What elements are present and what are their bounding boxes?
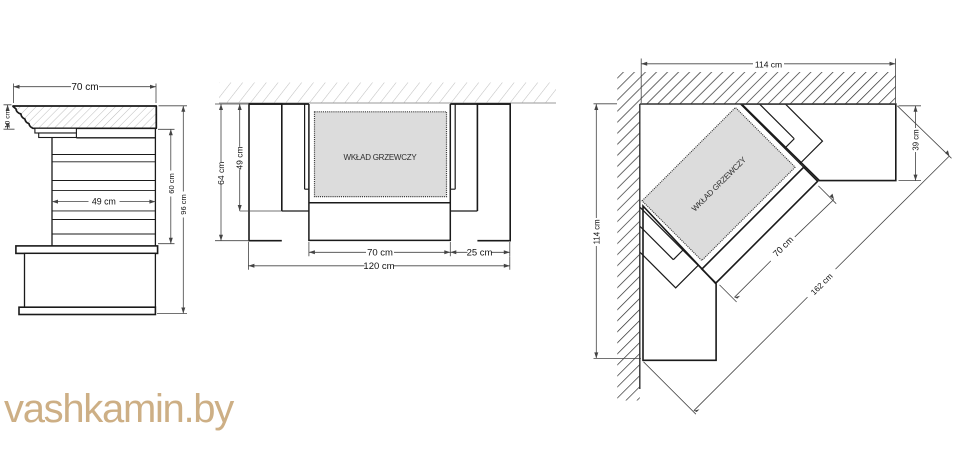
svg-text:vashkamin.by: vashkamin.by	[4, 387, 234, 431]
svg-text:10 cm: 10 cm	[5, 109, 12, 128]
svg-text:70 cm: 70 cm	[771, 234, 795, 258]
svg-text:70 cm: 70 cm	[367, 247, 393, 258]
svg-text:WKŁAD GRZEWCZY: WKŁAD GRZEWCZY	[344, 153, 418, 162]
svg-text:39 cm: 39 cm	[912, 129, 921, 150]
svg-text:114 cm: 114 cm	[755, 59, 782, 69]
svg-text:70 cm: 70 cm	[71, 82, 98, 93]
svg-text:49 cm: 49 cm	[235, 146, 245, 169]
svg-text:49 cm: 49 cm	[92, 197, 116, 207]
svg-text:25 cm: 25 cm	[467, 247, 493, 258]
svg-text:96 cm: 96 cm	[179, 194, 188, 214]
svg-text:64 cm: 64 cm	[216, 162, 226, 185]
svg-text:60 cm: 60 cm	[167, 173, 176, 193]
svg-text:114 cm: 114 cm	[592, 219, 601, 244]
svg-text:162 cm: 162 cm	[809, 272, 834, 297]
svg-text:120 cm: 120 cm	[363, 261, 394, 272]
